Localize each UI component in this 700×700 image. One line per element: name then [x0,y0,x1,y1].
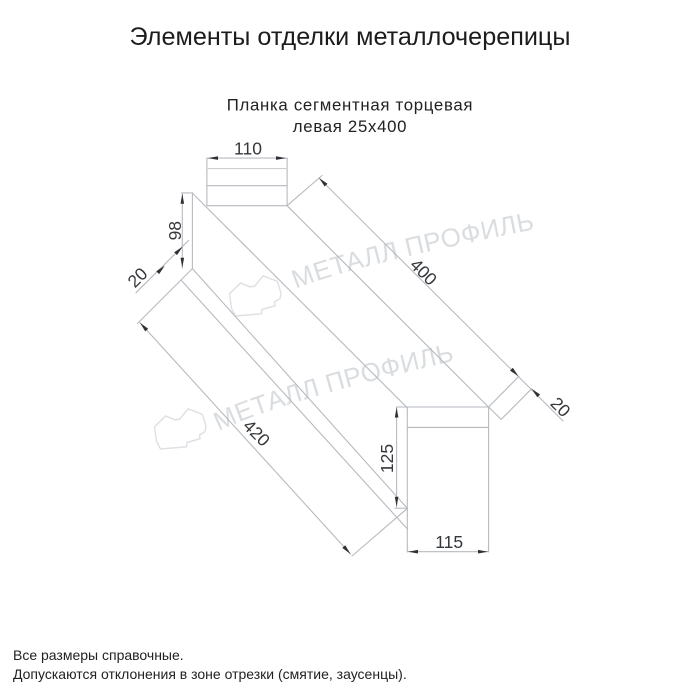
svg-text:левая 25х400: левая 25х400 [293,117,407,136]
svg-text:МЕТАЛЛ ПРОФИЛЬ: МЕТАЛЛ ПРОФИЛЬ [287,206,536,295]
svg-text:110: 110 [234,139,262,159]
svg-text:Планка сегментная торцевая: Планка сегментная торцевая [227,96,473,115]
svg-text:20: 20 [124,263,152,291]
svg-text:125: 125 [377,444,397,473]
svg-text:Все размеры справочные.: Все размеры справочные. [13,647,184,663]
svg-text:Допускаются отклонения в зоне: Допускаются отклонения в зоне отрезки (с… [13,666,407,682]
svg-text:20: 20 [547,393,575,421]
svg-text:98: 98 [165,221,185,240]
svg-text:Элементы отделки металлочерепи: Элементы отделки металлочерепицы [130,23,571,51]
svg-text:115: 115 [435,532,463,552]
